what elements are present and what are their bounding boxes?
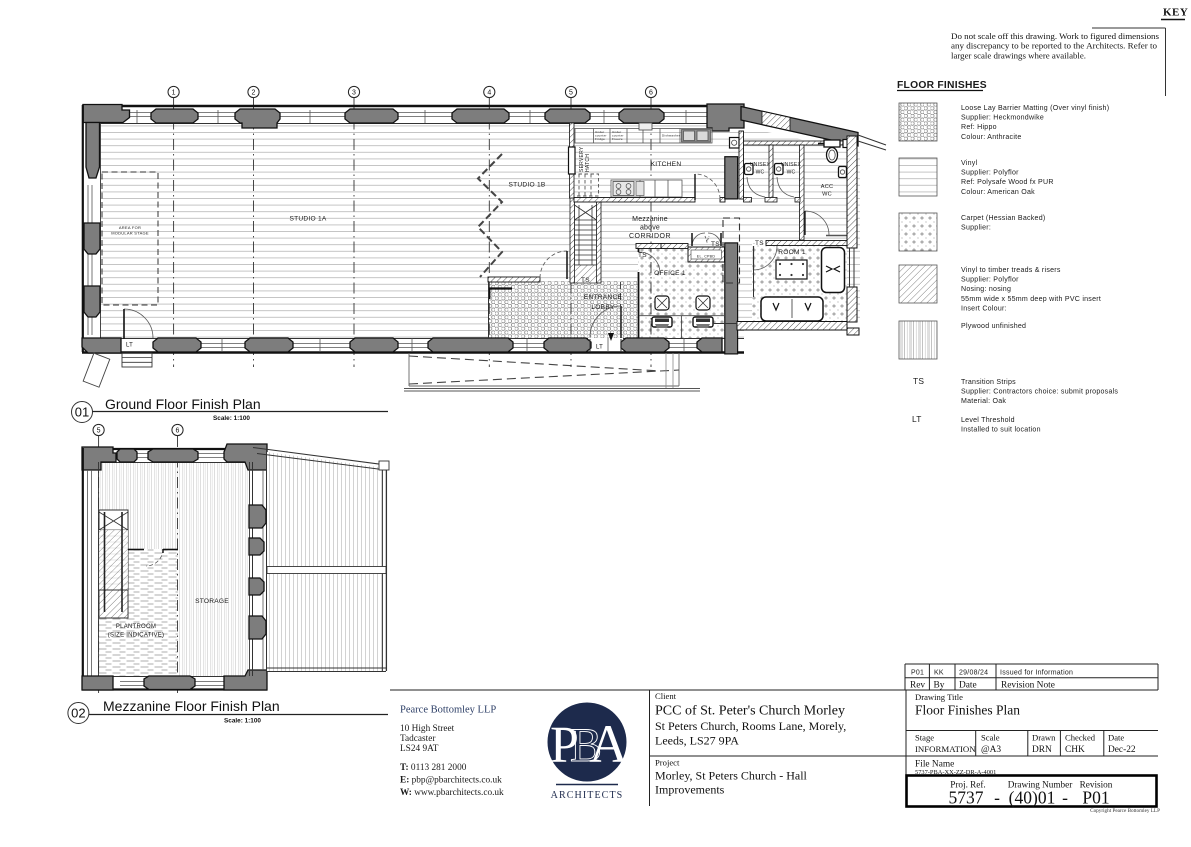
svg-text:(SIZE INDICATIVE): (SIZE INDICATIVE)	[108, 633, 164, 639]
svg-text:Nosing: nosing: Nosing: nosing	[961, 286, 1011, 293]
svg-text:MODULAR STAGE: MODULAR STAGE	[111, 231, 149, 236]
svg-text:WC: WC	[822, 192, 832, 198]
svg-text:CHK: CHK	[1065, 745, 1085, 755]
svg-text:INFORMATION: INFORMATION	[915, 744, 976, 754]
svg-text:PLANTROOM: PLANTROOM	[116, 624, 156, 630]
svg-text:Dishwasher: Dishwasher	[662, 134, 680, 138]
svg-text:Tadcaster: Tadcaster	[400, 734, 436, 744]
svg-text:Freeze: Freeze	[612, 137, 623, 141]
svg-text:PCC of St. Peter's Church Morl: PCC of St. Peter's Church Morley	[655, 704, 845, 719]
svg-text:6: 6	[649, 90, 653, 97]
svg-text:Scale: 1:100: Scale: 1:100	[224, 718, 261, 725]
svg-text:10 High Street: 10 High Street	[400, 724, 455, 734]
svg-text:UNISEX: UNISEX	[781, 162, 802, 168]
svg-text:1: 1	[172, 90, 176, 97]
svg-text:Vinyl to timber treads & riser: Vinyl to timber treads & risers	[961, 267, 1061, 274]
svg-text:any discrepancy to be reported: any discrepancy to be reported to the Ar…	[951, 41, 1158, 51]
svg-text:P: P	[550, 717, 579, 774]
svg-text:TS: TS	[711, 241, 720, 248]
svg-text:Pearce Bottomley LLP: Pearce Bottomley LLP	[400, 705, 496, 716]
svg-text:ARCHITECTS: ARCHITECTS	[551, 790, 624, 801]
svg-text:01: 01	[75, 405, 89, 420]
svg-text:Drawing Title: Drawing Title	[915, 692, 963, 702]
svg-text:EL. CPBD: EL. CPBD	[697, 255, 716, 259]
svg-text:DRN: DRN	[1032, 745, 1052, 755]
svg-text:Material: Oak: Material: Oak	[961, 398, 1006, 405]
svg-text:TS: TS	[755, 240, 764, 247]
svg-text:Checked: Checked	[1065, 733, 1096, 743]
svg-text:LS24 9AT: LS24 9AT	[400, 744, 439, 754]
svg-text:Scale: Scale	[981, 733, 1000, 743]
svg-text:5: 5	[97, 428, 101, 435]
svg-text:Supplier: Contractors choice:: Supplier: Contractors choice: submit pro…	[961, 389, 1118, 396]
svg-text:above: above	[640, 225, 660, 232]
svg-text:WC: WC	[756, 170, 765, 176]
svg-text:Level Threshold: Level Threshold	[961, 417, 1015, 424]
svg-text:Revision Note: Revision Note	[1001, 680, 1055, 690]
svg-text:Transition Strips: Transition Strips	[961, 379, 1016, 386]
svg-text:STUDIO 1B: STUDIO 1B	[508, 182, 545, 189]
svg-text:6: 6	[176, 428, 180, 435]
svg-text:KEY: KEY	[1163, 7, 1188, 19]
svg-text:P01: P01	[1082, 788, 1109, 808]
svg-text:Loose Lay Barrier Matting (Ove: Loose Lay Barrier Matting (Over vinyl fi…	[961, 105, 1109, 112]
svg-text:29/08/24: 29/08/24	[959, 670, 988, 677]
svg-text:5: 5	[569, 90, 573, 97]
svg-text:Date: Date	[1108, 733, 1124, 743]
svg-text:FLOOR FINISHES: FLOOR FINISHES	[897, 80, 987, 91]
svg-text:Installed to suit location: Installed to suit location	[961, 427, 1041, 434]
svg-text:Leeds, LS27 9PA: Leeds, LS27 9PA	[655, 734, 739, 748]
svg-text:CORRIDOR: CORRIDOR	[629, 233, 671, 240]
svg-text:Ref: Polysafe Wood fx PUR: Ref: Polysafe Wood fx PUR	[961, 179, 1054, 186]
svg-text:E: pbp@pbarchitects.co.uk: E: pbp@pbarchitects.co.uk	[400, 776, 502, 786]
svg-text:Mezzanine Floor Finish Plan: Mezzanine Floor Finish Plan	[103, 698, 280, 714]
svg-text:TS: TS	[581, 277, 590, 284]
svg-text:2: 2	[252, 90, 256, 97]
svg-text:St Peters Church, Rooms Lane,: St Peters Church, Rooms Lane, Morely,	[655, 719, 846, 733]
svg-text:Supplier: Heckmondwike: Supplier: Heckmondwike	[961, 115, 1044, 122]
svg-text:LT: LT	[596, 345, 603, 351]
svg-text:Issued for Information: Issued for Information	[1000, 670, 1073, 677]
svg-text:KK: KK	[934, 670, 944, 677]
svg-text:Rev: Rev	[910, 680, 925, 690]
svg-text:Improvements: Improvements	[655, 783, 725, 797]
svg-text:Morley, St Peters Church - Hal: Morley, St Peters Church - Hall	[655, 769, 808, 783]
svg-text:Supplier: Polyflor: Supplier: Polyflor	[961, 277, 1019, 284]
svg-text:By: By	[934, 680, 945, 690]
svg-text:@A3: @A3	[981, 745, 1001, 755]
svg-text:T: 0113 281 2000: T: 0113 281 2000	[400, 763, 467, 773]
svg-text:KITCHEN: KITCHEN	[651, 161, 682, 168]
svg-text:HATCH: HATCH	[585, 154, 591, 172]
svg-text:A: A	[589, 714, 628, 774]
svg-text:Client: Client	[655, 691, 677, 701]
svg-text:(40)01: (40)01	[1009, 788, 1056, 808]
svg-text:ROOM 1: ROOM 1	[778, 249, 806, 256]
svg-text:Do not scale off this drawing.: Do not scale off this drawing. Work to f…	[951, 31, 1160, 41]
svg-text:Colour: Anthracite: Colour: Anthracite	[961, 134, 1022, 141]
svg-text:Mezzanine: Mezzanine	[632, 216, 668, 223]
svg-text:3: 3	[352, 90, 356, 97]
svg-text:W: www.pbarchitects.co.uk: W: www.pbarchitects.co.uk	[400, 788, 504, 798]
svg-text:Insert Colour:: Insert Colour:	[961, 305, 1007, 312]
svg-text:Scale: 1:100: Scale: 1:100	[213, 415, 250, 422]
svg-text:Supplier:: Supplier:	[961, 225, 991, 232]
svg-text:LT: LT	[912, 414, 922, 424]
svg-text:5737: 5737	[949, 788, 984, 808]
svg-text:UNISEX: UNISEX	[750, 162, 771, 168]
svg-text:Drawn: Drawn	[1032, 733, 1056, 743]
svg-text:LT: LT	[126, 343, 133, 349]
svg-text:STORAGE: STORAGE	[195, 598, 229, 605]
svg-text:Project: Project	[655, 758, 680, 768]
svg-text:55mm wide x 55mm deep with PVC: 55mm wide x 55mm deep with PVC insert	[961, 296, 1101, 303]
svg-text:Dec-22: Dec-22	[1108, 745, 1136, 755]
svg-text:Stage: Stage	[915, 733, 934, 743]
svg-text:4: 4	[487, 90, 491, 97]
svg-text:Plywood unfinished: Plywood unfinished	[961, 323, 1026, 330]
svg-text:02: 02	[71, 706, 85, 721]
svg-text:P01: P01	[911, 670, 924, 677]
svg-text:ENTRANCE: ENTRANCE	[584, 294, 623, 301]
svg-text:-: -	[994, 788, 1000, 808]
svg-text:Floor Finishes Plan: Floor Finishes Plan	[915, 703, 1020, 718]
svg-text:Ref: Hippo: Ref: Hippo	[961, 124, 997, 131]
svg-text:STUDIO 1A: STUDIO 1A	[289, 216, 326, 223]
svg-text:AREA FOR: AREA FOR	[119, 225, 141, 230]
svg-text:Vinyl: Vinyl	[961, 160, 978, 167]
svg-text:Date: Date	[959, 680, 977, 690]
svg-text:TS: TS	[913, 376, 924, 386]
svg-text:Colour: American Oak: Colour: American Oak	[961, 189, 1035, 196]
svg-text:File Name: File Name	[915, 760, 954, 770]
svg-text:Fridge: Fridge	[595, 137, 605, 141]
svg-text:Copyright Pearce Bottomley LLP: Copyright Pearce Bottomley LLP	[1090, 808, 1160, 814]
svg-text:LOBBY: LOBBY	[591, 304, 615, 311]
svg-text:OFFICE 1: OFFICE 1	[654, 270, 686, 277]
svg-text:-: -	[1062, 788, 1068, 808]
svg-text:WC: WC	[787, 170, 796, 176]
svg-text:Ground Floor Finish Plan: Ground Floor Finish Plan	[105, 396, 261, 412]
svg-text:larger scale drawings where av: larger scale drawings where available.	[951, 50, 1086, 60]
svg-text:Carpet (Hessian Backed): Carpet (Hessian Backed)	[961, 215, 1045, 222]
svg-text:Supplier: Polyflor: Supplier: Polyflor	[961, 170, 1019, 177]
svg-text:TS: TS	[638, 252, 647, 259]
svg-text:ACC: ACC	[821, 184, 834, 190]
